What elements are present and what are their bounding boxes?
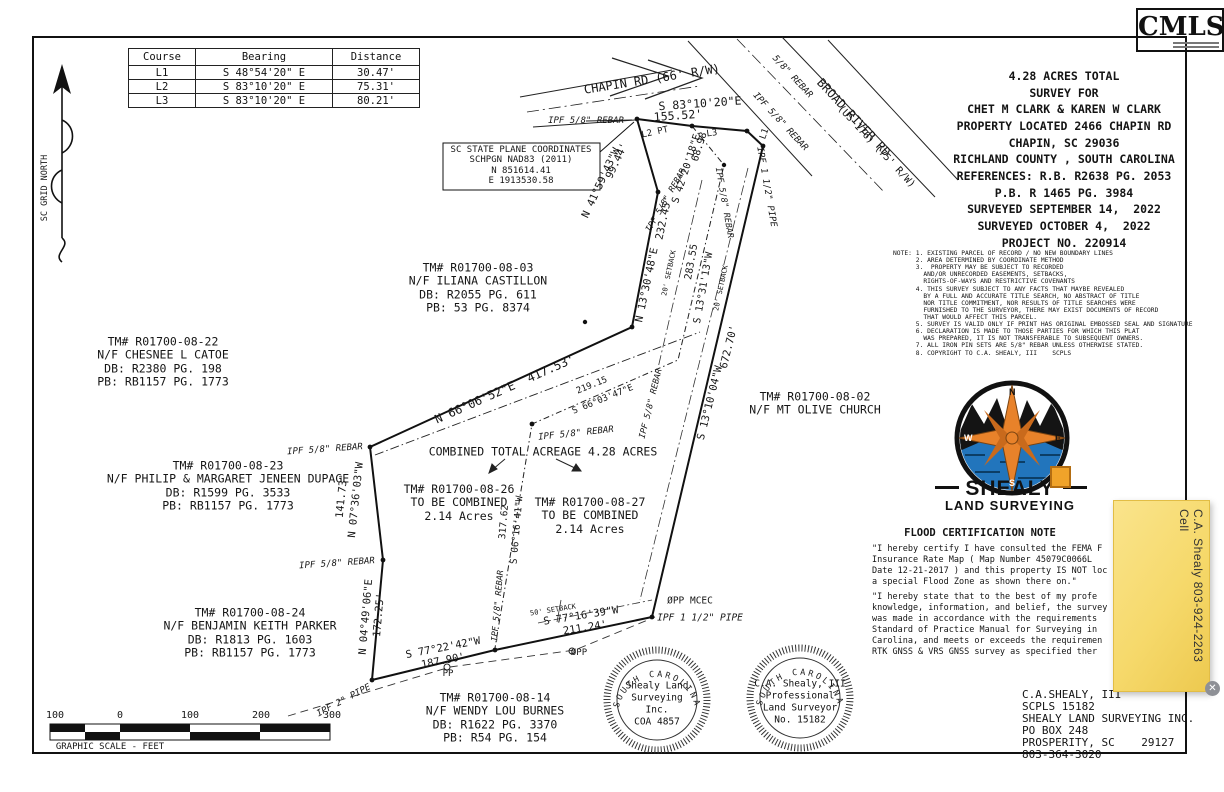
parcel-22-label: TM# R01700-08-22 N/F CHESNEE L CATOE DB:…	[97, 335, 229, 388]
cmls-logo: CMLS	[1136, 8, 1224, 52]
plat-label: 155.52'	[653, 108, 702, 125]
plat-label: 20' SETBACK	[660, 249, 678, 296]
cmls-label: CMLS	[1138, 10, 1222, 44]
sticky-note[interactable]: C.A. Shealy 803-924-2263 Cell	[1113, 500, 1210, 692]
distance-cell: 75.31'	[333, 80, 420, 94]
combined-acreage-label: COMBINED TOTAL ACREAGE 4.28 ACRES	[429, 445, 657, 458]
scale-number: 300	[323, 710, 341, 722]
parcel-02-label: TM# R01700-08-02 N/F MT OLIVE CHURCH	[749, 391, 881, 418]
parcel-24-label: TM# R01700-08-24 N/F BENJAMIN KEITH PARK…	[163, 606, 336, 659]
plat-label: 172.25'	[371, 592, 387, 637]
scale-number: 0	[117, 710, 123, 722]
plat-label: 232.45'	[653, 195, 674, 241]
course-header: Course	[129, 49, 196, 66]
bearing-cell: S 83°10'20" E	[196, 80, 333, 94]
sticky-note-text: C.A. Shealy 803-924-2263 Cell	[1177, 509, 1205, 685]
surveyor-contact-block: C.A.SHEALY, III SCPLS 15182 SHEALY LAND …	[1022, 689, 1194, 762]
flood-note-paragraph: "I hereby state that to the best of my p…	[872, 592, 1107, 658]
flood-note-paragraph: "I hereby certify I have consulted the F…	[872, 544, 1107, 588]
plat-label: IPF 5/8" REBAR	[287, 442, 363, 458]
course-table: Course Bearing Distance L1 S 48°54'20" E…	[128, 48, 420, 108]
plat-label: 20' SETBACK	[712, 264, 730, 311]
plat-label: N 13°30'48"E	[633, 247, 661, 324]
survey-notes: NOTE: 1. EXISTING PARCEL OF RECORD / NO …	[893, 250, 1193, 357]
table-row: L3 S 83°10'20" E 80.21'	[129, 94, 420, 108]
plat-label: N 66°06'52"E 417.53'	[433, 353, 577, 427]
flood-note-title: FLOOD CERTIFICATION NOTE	[880, 527, 1080, 539]
table-row: L1 S 48°54'20" E 30.47'	[129, 66, 420, 80]
chapin-rd-label: CHAPIN RD (66' R/W)	[583, 62, 721, 97]
parcel-26-label: TM# R01700-08-26 TO BE COMBINED 2.14 Acr…	[404, 483, 515, 523]
plat-label: IPF 5/8" REBAR	[548, 116, 624, 126]
scale-number: 100	[181, 710, 199, 722]
logo-orange-square	[1050, 466, 1071, 488]
plat-label: IPF 5/8" REBAR	[639, 368, 666, 440]
graphic-scale-caption: GRAPHIC SCALE - FEET	[56, 742, 164, 752]
sticky-note-close-icon[interactable]: ✕	[1205, 681, 1220, 696]
table-row: L2 S 83°10'20" E 75.31'	[129, 80, 420, 94]
plat-label: (US 176) (75' R/W)	[835, 103, 917, 190]
plat-label: ØPP MCEC	[667, 595, 713, 606]
survey-plat-page: { "colors":{"ink":"#111111","accent_oran…	[0, 0, 1224, 792]
sc-grid-north-label: SC GRID NORTH	[41, 155, 51, 222]
bearing-cell: S 83°10'20" E	[196, 94, 333, 108]
plat-label: IPF 5/8" REBAR	[750, 91, 809, 154]
course-cell: L2	[129, 80, 196, 94]
plat-label: S 13°10'04"W	[695, 365, 725, 442]
plat-label: IPF 1 1/2" PIPE	[754, 146, 778, 228]
bearing-header: Bearing	[196, 49, 333, 66]
seal-coa-text: Shealy Land Surveying Inc. COA 4857	[626, 680, 689, 728]
scale-number: 100	[46, 710, 64, 722]
scale-number: 200	[252, 710, 270, 722]
state-plane-coordinates: SC STATE PLANE COORDINATES SCHPGN NAD83 …	[451, 145, 592, 187]
cmls-tagline	[1173, 46, 1219, 48]
plat-label: 672.70'	[718, 324, 741, 370]
parcel-03-label: TM# R01700-08-03 N/F ILIANA CASTILLON DB…	[409, 261, 547, 314]
title-block: 4.28 ACRES TOTAL SURVEY FOR CHET M CLARK…	[940, 68, 1188, 251]
course-cell: L3	[129, 94, 196, 108]
distance-cell: 80.21'	[333, 94, 420, 108]
distance-header: Distance	[333, 49, 420, 66]
cmls-tagline	[1173, 42, 1219, 44]
plat-label: 317.62	[497, 504, 511, 539]
plat-label: IPF 5/8" REBAR	[712, 167, 734, 239]
parcel-27-label: TM# R01700-08-27 TO BE COMBINED 2.14 Acr…	[535, 496, 646, 536]
plat-label: 5/8" REBAR	[770, 54, 815, 101]
plat-label: IPF 5/8" REBAR	[538, 425, 615, 443]
logo-dash	[935, 486, 959, 489]
plat-label: IPF 1 1/2" PIPE	[657, 612, 743, 623]
plat-label: ØPP	[571, 648, 587, 658]
plat-label: 283.55	[683, 243, 701, 281]
plat-label: IPF 5/8" REBAR	[491, 570, 507, 642]
seal-pls-text: C.A. Shealy, III Professional Land Surve…	[754, 678, 846, 726]
distance-cell: 30.47'	[333, 66, 420, 80]
plat-label: IPF 5/8" REBAR	[299, 556, 375, 572]
parcel-14-label: TM# R01700-08-14 N/F WENDY LOU BURNES DB…	[426, 691, 564, 744]
plat-label: L2 PT	[641, 125, 670, 141]
bearing-cell: S 48°54'20" E	[196, 66, 333, 80]
plat-label: L1	[758, 127, 772, 141]
logo-subtitle: LAND SURVEYING	[930, 499, 1090, 513]
plat-label: PP	[443, 669, 454, 679]
parcel-23-label: TM# R01700-08-23 N/F PHILIP & MARGARET J…	[107, 459, 349, 512]
course-cell: L1	[129, 66, 196, 80]
